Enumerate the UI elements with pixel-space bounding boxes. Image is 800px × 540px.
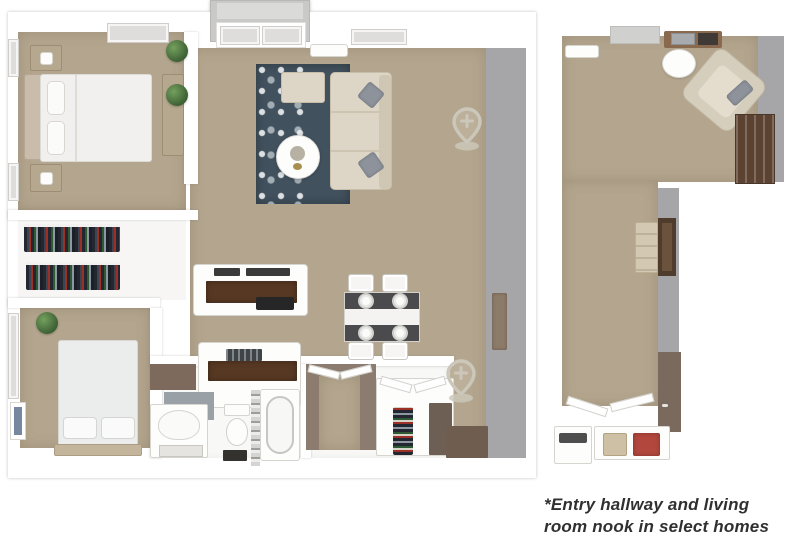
ottoman — [281, 72, 325, 103]
closet-rod-clothes — [24, 224, 120, 252]
bathroom-sink — [158, 410, 200, 440]
window — [352, 30, 406, 44]
right-wall — [486, 48, 526, 458]
closet-top-wall — [8, 210, 198, 220]
location-pin-icon[interactable] — [450, 106, 484, 152]
wall-artwork — [10, 402, 26, 440]
counter-appliance — [246, 268, 290, 276]
plate — [392, 325, 408, 341]
window — [9, 164, 18, 200]
window — [9, 40, 18, 76]
table-lamp — [40, 52, 53, 65]
ceiling-light-panel — [610, 26, 660, 44]
plant-icon — [166, 40, 188, 62]
artwork-print — [14, 407, 22, 435]
location-pin-icon[interactable] — [444, 358, 478, 404]
bedroom-1-window — [108, 24, 168, 42]
bathroom-tile — [150, 364, 196, 390]
laundry-floor — [319, 376, 360, 450]
plate — [358, 325, 374, 341]
dining-table — [344, 292, 420, 342]
hallway-floor — [562, 180, 658, 406]
entry-door — [492, 293, 507, 350]
table-decor — [293, 163, 302, 170]
pillow — [63, 417, 97, 439]
bathroom-vanity — [150, 404, 208, 458]
bedroom-2-window — [9, 314, 18, 398]
ac-unit — [565, 45, 599, 58]
laptop — [671, 33, 695, 45]
entry-cabinet — [554, 426, 592, 464]
laundry-wall — [360, 376, 376, 450]
plate — [392, 293, 408, 309]
counter-appliance — [214, 268, 240, 276]
sliding-glass-door — [216, 22, 306, 48]
toilet-tank — [224, 404, 250, 416]
sofa — [330, 72, 392, 190]
bathtub-surround — [260, 389, 300, 461]
laundry-wall — [306, 376, 319, 450]
nightstand — [30, 45, 62, 71]
plant-icon — [36, 312, 58, 334]
shower-curtain — [251, 390, 260, 466]
cooktop — [256, 297, 294, 310]
toilet — [226, 418, 248, 446]
glass-pane — [221, 27, 259, 44]
plant-icon — [166, 84, 188, 106]
kitchen-counter-upper — [193, 264, 308, 316]
storage-box — [633, 433, 660, 456]
closet-rod-clothes — [26, 262, 120, 290]
cushion-seam — [331, 111, 381, 113]
duvet-fold — [75, 75, 77, 161]
cabinet-item — [559, 433, 587, 443]
pillow — [101, 417, 135, 439]
entry-mat — [446, 426, 488, 458]
bathtub — [266, 396, 294, 454]
desk-tray — [698, 33, 718, 45]
storage-bag — [603, 433, 627, 456]
dining-chair — [382, 342, 408, 360]
footnote-line-1: *Entry hallway and living — [544, 494, 784, 516]
bedroom-2-top-wall — [8, 298, 160, 308]
dining-chair — [348, 342, 374, 360]
toilet-mat — [223, 450, 247, 461]
bed-2-headboard — [54, 444, 142, 456]
side-table — [662, 49, 696, 78]
floorplan-page: *Entry hallway and living room nook in s… — [0, 0, 800, 540]
bookshelf — [735, 114, 775, 184]
glass-pane — [263, 27, 301, 44]
hallway-door — [658, 352, 681, 432]
kitchen-sink — [226, 349, 262, 361]
table-decor — [290, 146, 305, 161]
nightstand — [30, 164, 62, 192]
entry-hallway-nook-floorplan — [552, 12, 794, 470]
bath-rug — [159, 445, 203, 457]
balcony-edge — [217, 3, 303, 19]
dining-chair — [382, 274, 408, 292]
door-handle — [662, 404, 668, 407]
table-lamp — [40, 172, 53, 185]
coffee-table — [276, 135, 320, 179]
floorplan-footnote: *Entry hallway and living room nook in s… — [544, 494, 784, 538]
plate — [358, 293, 374, 309]
ac-unit — [310, 44, 348, 57]
storage-bench — [635, 222, 658, 273]
shoe-shelf — [594, 426, 670, 460]
bed-2 — [58, 340, 138, 446]
main-floorplan — [8, 12, 536, 478]
dining-chair — [348, 274, 374, 292]
pillow — [47, 81, 65, 115]
console-desk — [664, 31, 722, 48]
door-frame-inner — [662, 223, 672, 271]
door-frame — [658, 218, 676, 276]
hanging-clothes — [393, 407, 413, 455]
pillow — [47, 121, 65, 155]
footnote-line-2: room nook in select homes — [544, 516, 784, 538]
countertop — [208, 361, 297, 381]
bed-1 — [40, 74, 152, 162]
